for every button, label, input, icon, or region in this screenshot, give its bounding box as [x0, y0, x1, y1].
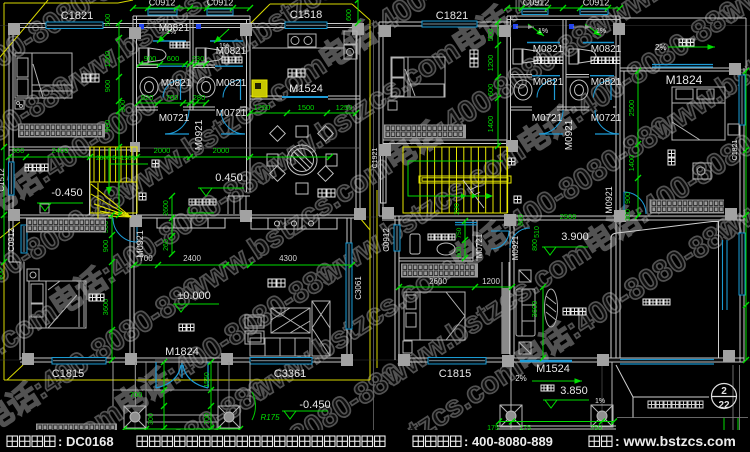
svg-text:920: 920 [141, 93, 154, 102]
svg-text:C1821: C1821 [436, 10, 468, 22]
svg-text:280: 280 [193, 93, 206, 102]
svg-text:900: 900 [103, 80, 112, 93]
svg-text:C0912: C0912 [7, 228, 16, 252]
svg-text:3.900: 3.900 [561, 231, 589, 243]
svg-text:M0721: M0721 [159, 113, 190, 124]
svg-text:M0921: M0921 [511, 235, 520, 260]
svg-text:2600: 2600 [429, 277, 447, 286]
svg-text:C1512: C1512 [0, 168, 6, 192]
svg-text:2400: 2400 [183, 254, 201, 263]
svg-text:M1824: M1824 [165, 346, 199, 358]
svg-text:1%: 1% [219, 43, 229, 50]
svg-text:1550: 1550 [204, 372, 211, 388]
svg-text:230: 230 [192, 54, 205, 63]
svg-text:R175: R175 [260, 413, 280, 422]
svg-text:: DC0168: : DC0168 [58, 434, 114, 449]
svg-text:-0.450: -0.450 [299, 399, 330, 411]
svg-text:600: 600 [167, 54, 180, 63]
svg-text:C1815: C1815 [52, 368, 84, 380]
svg-text:C1518: C1518 [290, 9, 322, 21]
svg-text:500: 500 [486, 29, 495, 42]
svg-text:M0821: M0821 [216, 78, 247, 89]
svg-text:1250: 1250 [254, 103, 271, 112]
svg-text:C0912: C0912 [583, 0, 610, 8]
svg-text:900: 900 [144, 54, 157, 63]
svg-text:1%: 1% [595, 398, 605, 405]
svg-text:M0721: M0721 [591, 113, 622, 124]
svg-text:2%: 2% [655, 43, 667, 52]
svg-text:M0921: M0921 [135, 230, 145, 258]
svg-text:2: 2 [721, 386, 727, 397]
svg-text:M0821: M0821 [591, 44, 622, 55]
svg-text:C1921: C1921 [372, 148, 379, 169]
svg-text:2%: 2% [515, 374, 527, 383]
svg-text:C0912: C0912 [523, 0, 550, 8]
svg-text:C1821: C1821 [732, 140, 739, 161]
svg-text:300: 300 [148, 413, 155, 425]
svg-text:1%: 1% [166, 29, 176, 36]
svg-text:M1824: M1824 [666, 73, 703, 87]
svg-text:M0921: M0921 [194, 119, 205, 150]
svg-text:300: 300 [12, 146, 25, 155]
svg-text:M0821: M0821 [533, 44, 564, 55]
svg-text:510: 510 [534, 226, 541, 238]
svg-text:2500: 2500 [560, 212, 577, 221]
svg-text:C0912: C0912 [382, 228, 391, 252]
svg-text:M0921: M0921 [604, 186, 614, 214]
svg-text:300: 300 [625, 209, 632, 221]
svg-text:2400: 2400 [52, 146, 69, 155]
svg-text:2600 D=1300: 2600 D=1300 [96, 155, 136, 162]
svg-text:4300: 4300 [279, 254, 297, 263]
svg-text:1250: 1250 [336, 103, 353, 112]
svg-text:900: 900 [101, 240, 110, 253]
svg-text:2000: 2000 [213, 146, 230, 155]
svg-text:C1821: C1821 [61, 10, 93, 22]
svg-text:M0921: M0921 [564, 119, 575, 150]
svg-text:M0721: M0721 [475, 233, 484, 258]
svg-text:3.850: 3.850 [560, 385, 588, 397]
svg-text:260: 260 [163, 239, 170, 251]
svg-text:300: 300 [118, 100, 127, 113]
svg-text:M1524: M1524 [289, 83, 323, 95]
svg-text:1400: 1400 [627, 155, 636, 172]
svg-text:800: 800 [518, 214, 525, 226]
svg-text:22: 22 [718, 400, 730, 411]
svg-text:1%: 1% [538, 28, 548, 35]
svg-text:C3361: C3361 [274, 368, 306, 380]
svg-text:2000: 2000 [154, 146, 171, 155]
svg-text:: www.bstzcs.com: : www.bstzcs.com [615, 433, 736, 449]
svg-text:1500: 1500 [298, 103, 315, 112]
svg-text:M0821: M0821 [591, 77, 622, 88]
svg-text:600: 600 [346, 9, 353, 21]
svg-text:600: 600 [456, 246, 463, 257]
svg-text:1200: 1200 [482, 277, 500, 286]
svg-text:±0.000: ±0.000 [177, 290, 211, 302]
svg-text:800: 800 [532, 239, 539, 251]
svg-text:M0721: M0721 [216, 108, 247, 119]
svg-text:700: 700 [130, 390, 143, 399]
svg-text:2500: 2500 [627, 100, 636, 117]
svg-text:: 400-8080-889: : 400-8080-889 [464, 434, 553, 449]
svg-text:700: 700 [166, 93, 179, 102]
svg-text:M0821: M0821 [161, 78, 192, 89]
svg-text:750: 750 [456, 227, 463, 238]
svg-text:1%: 1% [596, 28, 606, 35]
svg-text:900: 900 [625, 192, 632, 204]
svg-text:1200: 1200 [103, 51, 112, 68]
svg-text:3600: 3600 [530, 301, 539, 318]
svg-text:C0912: C0912 [207, 0, 234, 8]
svg-text:M1524: M1524 [536, 363, 570, 375]
svg-text:700: 700 [204, 413, 211, 425]
svg-text:M0721: M0721 [532, 113, 563, 124]
svg-text:1400: 1400 [486, 116, 495, 133]
svg-text:500: 500 [103, 14, 112, 27]
svg-text:600: 600 [0, 268, 5, 280]
svg-text:1200: 1200 [486, 55, 495, 72]
svg-text:200: 200 [454, 203, 461, 215]
svg-text:C1815: C1815 [439, 368, 471, 380]
svg-text:C0912: C0912 [149, 0, 176, 8]
svg-text:0.450: 0.450 [215, 172, 243, 184]
svg-text:M0821: M0821 [533, 77, 564, 88]
svg-text:C3061: C3061 [354, 276, 363, 300]
svg-text:600: 600 [486, 84, 495, 97]
svg-text:2600: 2600 [163, 200, 170, 216]
svg-text:-0.450: -0.450 [51, 187, 82, 199]
